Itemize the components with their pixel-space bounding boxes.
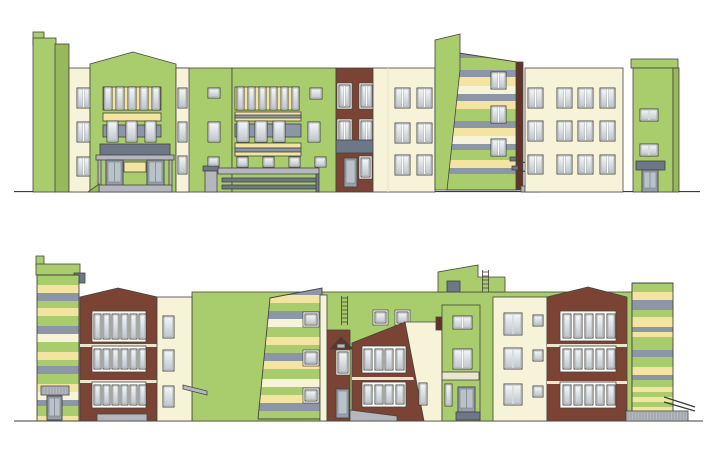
window-pane [179,157,186,173]
window-pane [579,89,585,107]
window [281,87,288,110]
window-pane [131,315,136,338]
window-pane [641,145,648,155]
window [270,87,277,110]
window-pane [565,122,571,140]
window [163,316,174,338]
window [504,348,522,369]
stripe-band [37,326,79,334]
roof-door [447,281,460,292]
window [563,385,571,405]
window [563,349,571,369]
window [107,121,118,142]
window [640,144,658,156]
window-pane [575,386,581,404]
window-pane [290,158,299,166]
window-pane [104,315,109,338]
window [574,385,582,405]
window [373,310,388,325]
window-pane [108,122,117,141]
canopy-slab [442,372,479,380]
stripe-band [258,327,322,337]
top-elevation [14,32,700,200]
window [121,314,128,339]
window-pane [597,315,603,337]
window-pane [558,89,564,107]
accent-band [103,113,161,121]
window [528,155,543,174]
window-pane [579,156,585,173]
window [364,385,372,404]
window-pane [514,314,521,334]
window-pane [179,123,186,141]
window-pane [514,349,521,368]
window [533,315,543,326]
stripe-stack [632,283,673,421]
stripe-band [37,285,79,293]
window [395,155,410,175]
window-pane [492,140,498,155]
stripe-band [258,421,322,429]
window [77,88,90,108]
window-pane [564,386,570,404]
window-pane [164,387,173,406]
window [178,156,187,174]
window [607,385,615,405]
window-pane [362,86,366,106]
stripe-band [632,283,673,292]
window-pane [499,73,505,88]
window [208,157,219,166]
stripe-band [37,275,79,285]
window [139,314,146,339]
window-pane [376,313,385,322]
stripe-band [258,379,322,387]
window-pane [140,350,145,368]
stripe-band [632,337,673,350]
window-pane [376,350,382,369]
window-pane [446,385,451,405]
window-pane [209,89,219,97]
window-pane [463,317,471,328]
window [419,383,427,405]
window-pane [454,317,462,328]
spandrel-band [336,140,373,153]
stripe-band [446,128,517,136]
window [557,121,572,141]
window-pane [365,350,371,369]
window [491,139,506,156]
window-pane [367,86,371,106]
stripe-band [258,369,322,379]
window [574,314,582,338]
window-pane [565,156,571,173]
window [504,313,522,335]
tower-cap [36,264,80,275]
striped-tower [632,283,673,421]
stripe-band [37,360,79,366]
window [528,121,543,141]
window-pane [558,156,564,173]
window-pane [586,315,592,337]
window-pane [534,351,542,360]
stripe-band [632,392,673,397]
stripe-band [632,387,673,392]
window-pane [362,122,366,141]
stair-tower [33,38,56,192]
window-pane [209,158,218,165]
window-pane [104,350,109,368]
entry-door [47,396,62,420]
window [248,87,255,110]
window [395,88,410,108]
window-pane [306,391,316,400]
window [308,122,320,142]
window [359,156,372,179]
stripe-band [632,317,673,327]
window [396,385,404,404]
window [112,349,119,369]
entrance-header [100,144,170,155]
window-pane [141,88,147,109]
window [139,385,146,405]
stripe-band [632,332,673,337]
window [77,157,90,176]
window-pane [271,88,276,109]
window-pane [425,124,431,142]
window-pane [420,384,426,404]
stripe-band [446,168,517,174]
window-pane [164,351,173,370]
window-pane [608,156,614,173]
window [140,87,148,110]
window-pane [131,386,136,404]
window-pane [104,386,109,404]
window [417,155,432,175]
window [557,155,572,174]
window-pane [131,350,136,368]
window-pane [586,89,592,107]
window [578,155,593,174]
window-pane [84,158,89,175]
window-pane [564,350,570,368]
window-pane [386,386,392,403]
window [163,386,174,407]
window [263,157,274,167]
stripe-band [37,316,79,326]
window-pane [403,156,409,174]
window [303,350,319,366]
window [259,87,266,110]
window-pane [113,350,118,368]
window-pane [529,156,535,173]
window-pane [601,156,607,173]
entry-door [458,387,475,412]
window [574,349,582,369]
lamp-head [510,157,516,161]
pilaster [320,295,327,421]
wall-cream-strip [157,297,192,421]
window [359,83,374,109]
window-pane [365,386,371,403]
window [396,349,404,370]
window [126,121,137,142]
window-pane [362,159,369,176]
lamp-head [512,166,518,170]
stair-tower-side [55,44,69,192]
window-pane [140,315,145,338]
window-pane [499,107,505,122]
window-pane [316,158,325,166]
door-canopy [41,386,69,395]
stripe-band [37,293,79,301]
window [585,385,593,405]
stripe-band [632,357,673,367]
window-pane [339,353,347,372]
stripe-band [37,308,79,316]
window-pane [264,158,273,166]
window [578,121,593,141]
window [640,109,658,121]
accent-band [235,152,301,156]
stripe-band [37,301,79,308]
window-pane [536,156,542,173]
window [112,385,119,405]
accent-band [235,143,301,148]
canopy-post [169,160,172,186]
window-pane [579,122,585,140]
window-pane [425,89,431,107]
window [121,349,128,369]
window [103,349,110,369]
window [533,350,543,361]
window-pane [396,124,402,142]
window [600,121,615,141]
window-pane [105,88,111,109]
entrance-panel [124,162,146,172]
window-pane [260,88,265,109]
stripe-band [446,174,517,200]
window-pane [129,88,135,109]
window-pane [84,89,89,107]
entrance-door [106,160,123,186]
window-pane [418,156,424,174]
window-pane [345,122,349,141]
window [130,349,137,369]
window [596,349,604,369]
window-pane [454,350,462,368]
window [375,385,383,404]
window-pane [492,107,498,122]
window-pane [586,122,592,140]
window-pane [650,110,657,120]
stripe-band [258,337,322,345]
elevation-sheet [0,0,709,459]
window [208,122,220,142]
window [557,88,572,108]
window [385,349,393,370]
window [94,314,101,339]
window-pane [113,315,118,338]
hatch-face [626,411,688,421]
door-leaf [338,391,347,414]
window [607,314,615,338]
window-pane [597,386,603,404]
stripe-band [37,352,79,360]
window-pane [558,122,564,140]
window-pane [575,315,581,337]
window [303,312,319,327]
window-pane [529,89,535,107]
window-pane [78,89,83,107]
window-pane [641,110,648,120]
window-pane [536,122,542,140]
window [152,87,160,110]
stripe-band [258,429,322,439]
window-pane [608,89,614,107]
stripe-band [632,350,673,357]
window-pane [311,89,321,98]
window-pane [306,315,316,324]
window-pane [608,350,614,368]
window [600,88,615,108]
stripe-band [37,342,79,352]
window [585,349,593,369]
window-pane [492,73,498,88]
window-pane [140,386,145,404]
window [255,121,267,142]
window [130,314,137,339]
stripe-band [37,366,79,374]
window-pane [403,89,409,107]
pediment-louver [337,344,345,348]
window-pane [209,123,219,141]
window [445,384,452,406]
window [491,106,506,123]
stripe-band [258,403,322,411]
window [94,349,101,369]
window [453,316,472,329]
window [385,385,393,404]
door-canopy [636,161,665,170]
window [178,122,187,142]
entry-door [642,170,658,192]
window-pane [534,316,542,325]
window-pane [179,89,186,107]
window [208,88,220,98]
window-pane [309,123,319,141]
window-pane [418,124,424,142]
window-pane [122,315,127,338]
entrance-stoop [99,185,172,192]
window-pane [256,122,266,141]
window-pane [282,88,287,109]
window-pane [397,350,403,369]
window [121,385,128,405]
window-pane [463,350,471,368]
entrance-canopy [96,155,174,160]
window [163,350,174,371]
window-pane [514,385,521,404]
window [600,155,615,174]
facade-elevations-drawing [0,0,709,459]
accent-band [235,148,301,152]
window [585,314,593,338]
side-door [344,158,357,187]
stripe-band [632,380,673,387]
window [139,349,146,369]
window-pane [84,123,89,141]
window [607,349,615,369]
entrance-door [147,160,164,186]
accent-band [235,115,301,118]
window-pane [597,350,603,368]
window-pane [608,315,614,337]
window [130,385,137,405]
stripe-band [632,300,673,310]
window-pane [95,386,100,404]
window-pane [418,89,424,107]
side-door [336,389,349,418]
window-pane [238,158,247,166]
door-leaf [346,160,355,183]
window [504,384,522,405]
ribbon-band [235,87,299,110]
window-pane [386,350,392,369]
veranda-rail [222,178,318,182]
window-pane [505,314,512,334]
window [237,121,249,142]
window [528,88,543,108]
stripe-band [632,327,673,332]
window [116,87,124,110]
window [417,123,432,143]
window-pane [122,386,127,404]
edge-strip [673,68,679,192]
veranda-roof [218,168,319,174]
window [303,388,319,403]
window [375,349,383,370]
window-pane [534,387,542,396]
window-pane [396,156,402,174]
canopy-post [98,160,101,186]
window-pane [505,385,512,404]
window [337,83,352,109]
window [315,157,326,167]
window-pane [397,386,403,403]
window [596,385,604,405]
window [104,87,112,110]
window [364,349,372,370]
tower-cap [631,59,678,68]
stripe-band [632,310,673,317]
window-pane [536,89,542,107]
window-pane [564,315,570,337]
window [491,72,506,89]
window-pane [505,349,512,368]
window-pane [153,88,159,109]
window-pane [376,386,382,403]
window-pane [398,313,407,322]
stoop [456,412,480,420]
window-pane [340,122,344,141]
window-pane [95,350,100,368]
window [336,350,350,375]
window-pane [403,124,409,142]
window-pane [345,86,349,106]
window-pane [238,88,243,109]
window-pane [586,386,592,404]
